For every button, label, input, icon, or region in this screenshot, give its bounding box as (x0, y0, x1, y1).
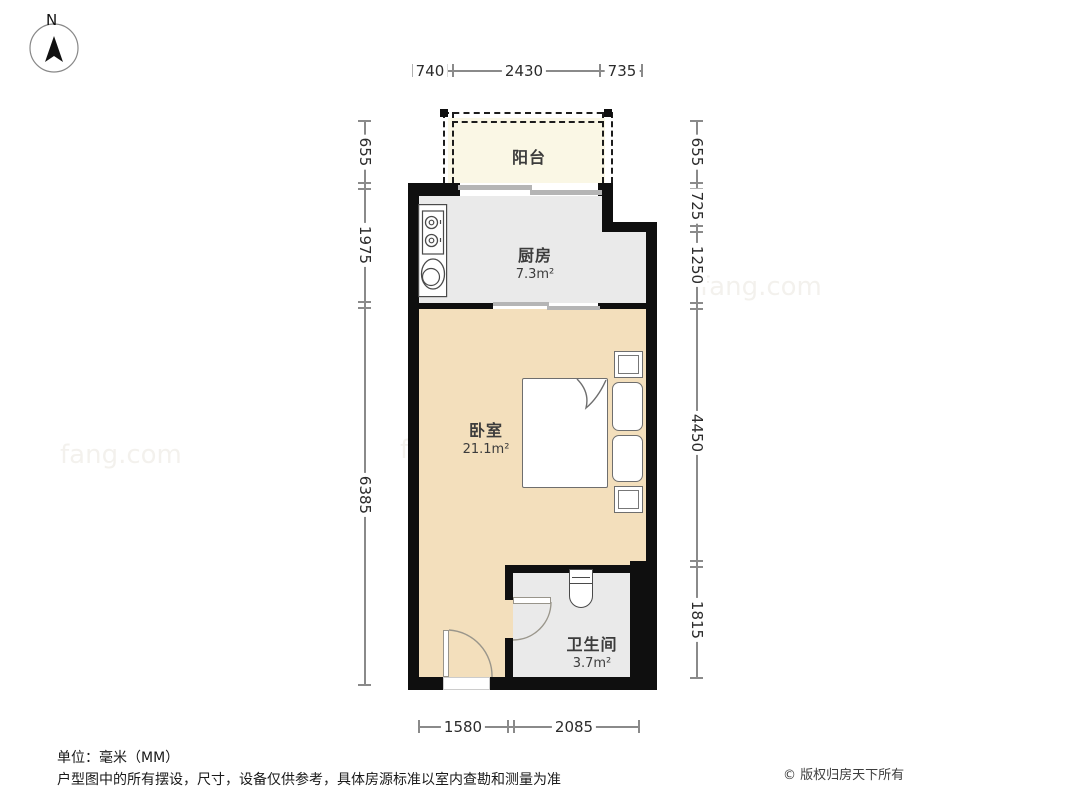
wall-bathroom-left-upper (505, 565, 513, 600)
wall-right-mid (646, 222, 657, 567)
room-label-balcony: 阳台 (512, 144, 546, 168)
dim-right-1: 725 (687, 189, 707, 224)
pillow (612, 382, 643, 431)
balcony-dash-left-outer (443, 112, 445, 183)
dim-left-0: 655 (355, 135, 375, 170)
balcony-dash-top-outer (443, 112, 613, 114)
dim-right-0: 655 (687, 135, 707, 170)
balcony-sliding-door-panel-b (530, 190, 602, 195)
bathroom-area: 3.7m² (573, 656, 612, 671)
dim-right-3: 4450 (687, 411, 707, 455)
bathroom-door-arc-icon (509, 598, 555, 644)
dim-left-2: 6385 (355, 473, 375, 517)
bed-fold-icon (570, 375, 615, 420)
dim-line-left (364, 120, 366, 685)
floor-plan: fang.com fang.com fang.com N (0, 0, 1066, 800)
wall-bottom-left (408, 677, 443, 690)
copyright: © 版权归房天下所有 (783, 764, 904, 783)
unit-note: 单位：毫米（MM） (57, 747, 179, 767)
bedroom-name: 卧室 (469, 417, 503, 441)
toilet-bowl-icon (569, 583, 593, 608)
room-label-kitchen: 厨房 7.3m² (516, 242, 555, 282)
nightstand (614, 351, 643, 378)
kitchen-sliding-door-panel-a (493, 302, 549, 306)
dim-top-1: 2430 (502, 62, 546, 80)
balcony-corner-right (604, 109, 612, 117)
bathroom-name: 卫生间 (566, 631, 617, 655)
kitchen-name: 厨房 (518, 242, 552, 266)
bathroom-door-leaf (513, 597, 551, 604)
balcony-sliding-door-panel-a (458, 185, 532, 190)
dim-bottom-0: 1580 (441, 718, 485, 736)
bedroom-area: 21.1m² (463, 442, 510, 457)
dim-top-2: 735 (605, 62, 640, 80)
nightstand (614, 486, 643, 513)
watermark: fang.com (700, 272, 822, 302)
entry-door-arc-icon (443, 628, 495, 680)
room-label-bathroom: 卫生间 3.7m² (566, 631, 617, 671)
wall-bathroom-top (505, 565, 630, 573)
sink-icon (422, 259, 445, 289)
dim-right-2: 1250 (687, 243, 707, 287)
wall-top-left (408, 183, 460, 196)
compass-north-label: N (46, 11, 57, 29)
balcony-corner-left (440, 109, 448, 117)
balcony-dash-top-inner (452, 121, 604, 123)
dim-right-4: 1815 (687, 598, 707, 642)
toilet-tank-line (572, 577, 590, 578)
kitchen-floor-ext (598, 232, 646, 303)
pillow (612, 435, 643, 482)
wall-bottom-right (490, 677, 657, 690)
wall-kitchen-divider-right (598, 303, 646, 309)
watermark: fang.com (60, 440, 182, 470)
balcony-dash-right-outer (611, 112, 613, 183)
disclaimer: 户型图中的所有摆设，尺寸，设备仅供参考，具体房源标准以室内查勘和测量为准 (57, 769, 561, 789)
room-label-bedroom: 卧室 21.1m² (463, 417, 510, 457)
wall-right-lower (630, 561, 657, 685)
kitchen-sliding-door-panel-b (547, 306, 600, 310)
kitchen-area: 7.3m² (516, 267, 555, 282)
dim-bottom-1: 2085 (552, 718, 596, 736)
balcony-name: 阳台 (512, 144, 546, 168)
wall-kitchen-divider-left (419, 303, 493, 309)
kitchen-counter (418, 204, 448, 298)
dim-top-0: 740 (413, 62, 448, 80)
dim-left-1: 1975 (355, 223, 375, 267)
